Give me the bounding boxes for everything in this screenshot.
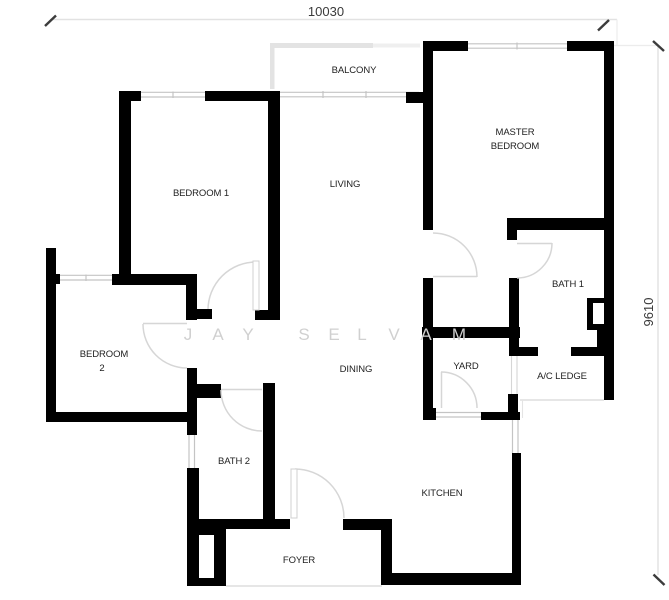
svg-text:BALCONY: BALCONY [332,65,377,76]
svg-text:A/C LEDGE: A/C LEDGE [537,371,587,382]
svg-text:A: A [212,325,224,344]
svg-text:Y: Y [242,325,253,344]
svg-text:M: M [452,325,466,344]
svg-text:S: S [298,325,309,344]
svg-text:BATH 1: BATH 1 [552,279,584,290]
svg-text:E: E [328,325,339,344]
svg-text:2: 2 [99,363,104,374]
svg-text:A: A [420,325,432,344]
svg-text:KITCHEN: KITCHEN [422,488,463,499]
svg-text:MASTER: MASTER [496,127,535,138]
svg-text:YARD: YARD [453,361,479,372]
svg-text:FOYER: FOYER [283,555,315,566]
svg-text:BATH 2: BATH 2 [218,456,250,467]
svg-text:DINING: DINING [340,364,373,375]
svg-text:LIVING: LIVING [330,179,361,190]
svg-text:10030: 10030 [308,4,344,19]
svg-text:J: J [184,325,193,344]
svg-text:9610: 9610 [641,298,656,327]
svg-text:BEDROOM: BEDROOM [491,141,540,152]
svg-text:BEDROOM 1: BEDROOM 1 [173,188,229,199]
svg-text:L: L [357,325,366,344]
svg-text:BEDROOM: BEDROOM [80,349,129,360]
svg-text:V: V [388,325,400,344]
